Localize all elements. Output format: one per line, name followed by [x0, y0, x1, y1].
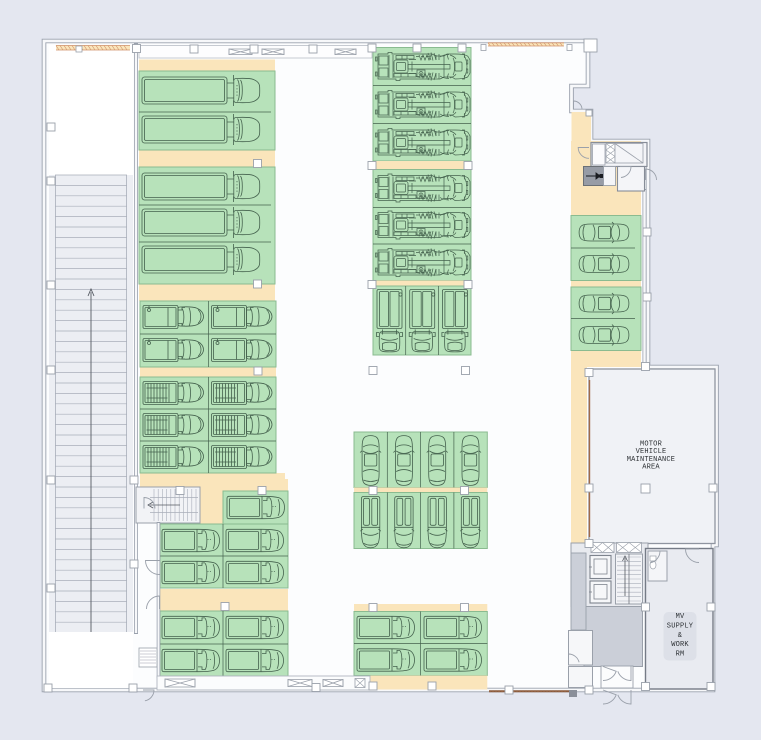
svg-text:&: & [678, 632, 683, 640]
svg-text:SUPPLY: SUPPLY [667, 622, 694, 630]
svg-text:WORK: WORK [671, 641, 689, 649]
svg-text:MV: MV [676, 613, 685, 621]
svg-text:AREA: AREA [642, 464, 660, 472]
svg-text:RM: RM [676, 651, 685, 659]
